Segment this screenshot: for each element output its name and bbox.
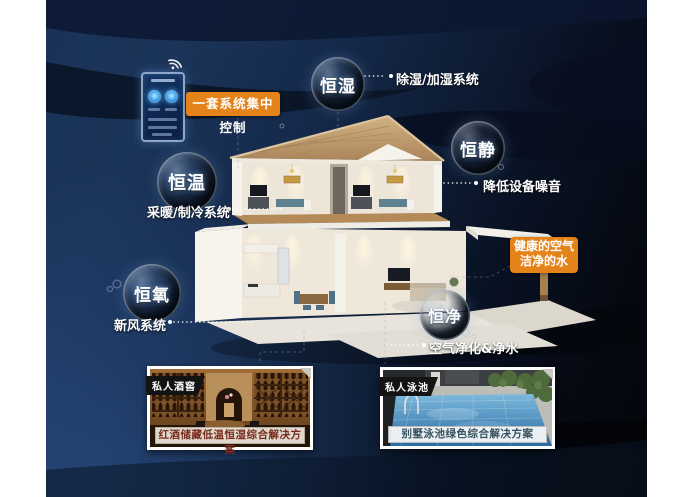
bubble-quiet-text: 恒静 xyxy=(460,136,496,161)
corner-fold xyxy=(542,369,553,380)
pool-caption: 别墅泳池绿色综合解决方案 xyxy=(388,426,547,443)
healthy-air-water-box: 健康的空气 洁净的水 xyxy=(510,237,578,273)
wine-cellar-tag: 私人酒窖 xyxy=(146,376,205,395)
panel-row xyxy=(148,126,177,129)
label-purity-system: 空气净化&净水 xyxy=(429,338,518,357)
bubble-humidity: 恒湿 xyxy=(311,57,365,111)
corner-fold xyxy=(300,368,311,379)
panel-dial-right xyxy=(165,90,178,103)
dark-canvas: 一套系统集中控制 恒湿 恒静 恒温 恒氧 恒净 除湿/加湿系统 降低设备噪音 采… xyxy=(46,0,647,497)
bubble-humidity-text: 恒湿 xyxy=(320,72,356,97)
bubble-temperature-text: 恒温 xyxy=(168,169,206,195)
panel-row xyxy=(165,108,177,111)
bubble-purity-text: 恒净 xyxy=(428,303,462,327)
wine-cellar-caption: 红酒储藏低温恒湿综合解决方案 xyxy=(155,427,305,444)
smart-control-panel xyxy=(141,72,185,142)
healthy-air-line: 健康的空气 xyxy=(510,239,578,254)
bubble-oxygen-text: 恒氧 xyxy=(134,281,170,306)
panel-header xyxy=(151,79,175,82)
label-oxygen-system: 新风系统 xyxy=(114,315,166,334)
panel-row xyxy=(152,133,172,136)
panel-dial-left xyxy=(148,90,161,103)
pool-photo: 私人泳池 别墅泳池绿色综合解决方案 xyxy=(380,367,555,449)
bubble-oxygen: 恒氧 xyxy=(123,264,181,322)
wine-cellar-photo: 私人酒窖 红酒储藏低温恒湿综合解决方案 xyxy=(147,366,313,450)
pool-tag: 私人泳池 xyxy=(379,377,438,396)
label-humidity-system: 除湿/加湿系统 xyxy=(396,69,479,88)
panel-row xyxy=(148,108,160,111)
system-control-label: 一套系统集中控制 xyxy=(186,92,280,116)
bubble-quiet: 恒静 xyxy=(451,121,505,175)
label-quiet-system: 降低设备噪音 xyxy=(483,176,561,195)
bubble-purity: 恒净 xyxy=(420,290,470,340)
label-temperature-system: 采暖/制冷系统 xyxy=(147,202,230,221)
poster: 一套系统集中控制 恒湿 恒静 恒温 恒氧 恒净 除湿/加湿系统 降低设备噪音 采… xyxy=(0,0,700,497)
panel-row xyxy=(148,118,177,121)
clean-water-line: 洁净的水 xyxy=(510,254,578,269)
